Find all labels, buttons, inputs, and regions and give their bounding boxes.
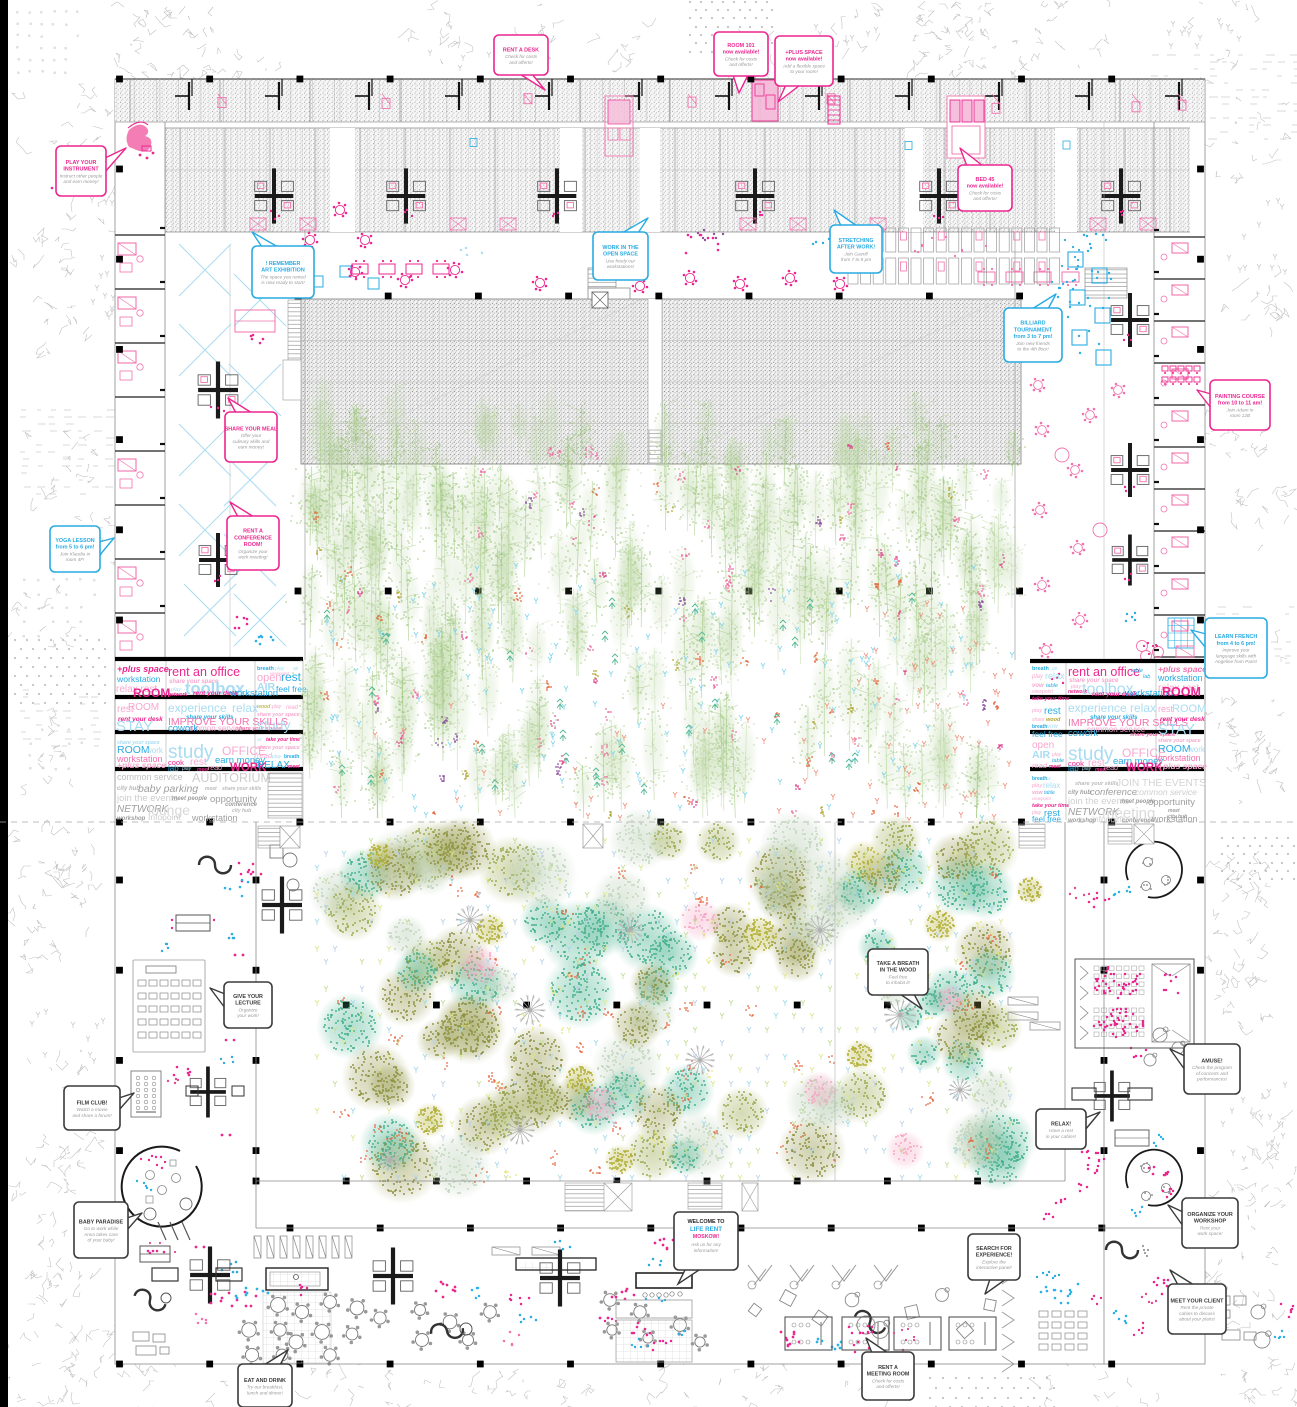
svg-text:meet: meet — [1049, 764, 1061, 770]
svg-text:lab: lab — [1068, 764, 1079, 773]
svg-text:and offerts!: and offerts! — [876, 1384, 900, 1389]
svg-text:Organize: Organize — [238, 1008, 257, 1013]
svg-text:from 3 to 7 pm!: from 3 to 7 pm! — [1014, 334, 1053, 340]
svg-text:lunch and dinner!: lunch and dinner! — [247, 1390, 284, 1395]
svg-text:Angeline from Paris!: Angeline from Paris! — [1214, 659, 1258, 664]
svg-text:Join Gavrill: Join Gavrill — [843, 252, 868, 257]
svg-text:! REMEMBER: ! REMEMBER — [266, 261, 301, 267]
svg-text:Feel free: Feel free — [889, 975, 908, 980]
svg-text:Instruct other people: Instruct other people — [60, 174, 103, 179]
svg-text:your work!: your work! — [236, 1013, 259, 1018]
svg-text:Join Adam in: Join Adam in — [1226, 408, 1254, 413]
svg-text:AUDITORIUM: AUDITORIUM — [192, 771, 271, 785]
svg-text:workstations!: workstations! — [607, 264, 635, 269]
svg-text:experience: experience — [1068, 701, 1127, 715]
svg-text:LEARN FRENCH: LEARN FRENCH — [1215, 634, 1258, 640]
svg-text:Ask us for any: Ask us for any — [690, 1242, 721, 1247]
svg-text:Watch a movie: Watch a movie — [77, 1107, 108, 1112]
svg-text:WORK IN THE: WORK IN THE — [602, 245, 639, 251]
svg-text:Check for costs: Check for costs — [872, 1379, 905, 1384]
svg-text:IN THE WOOD: IN THE WOOD — [880, 968, 917, 974]
svg-text:wood: wood — [257, 704, 271, 710]
svg-text:Join Klaudia in: Join Klaudia in — [59, 552, 91, 557]
svg-text:Add a flexible space: Add a flexible space — [782, 64, 825, 69]
svg-text:STAY: STAY — [116, 718, 153, 735]
svg-text:cabins to discuss: cabins to discuss — [1179, 1311, 1215, 1316]
svg-text:relax: relax — [1130, 701, 1156, 715]
svg-text:meet: meet — [288, 764, 300, 770]
svg-text:cowork: cowork — [168, 723, 198, 734]
svg-text:viewpoint: viewpoint — [1032, 689, 1053, 695]
svg-text:+PLUS SPACE: +PLUS SPACE — [785, 50, 823, 56]
svg-text:play: play — [1031, 674, 1044, 680]
svg-text:now available!: now available! — [723, 50, 760, 56]
svg-text:from 10 to 11 am!: from 10 to 11 am! — [1218, 401, 1263, 407]
svg-text:earn money!: earn money! — [238, 445, 265, 450]
svg-text:ORGANIZE YOUR: ORGANIZE YOUR — [1187, 1212, 1233, 1218]
svg-text:EAT AND DRINK: EAT AND DRINK — [244, 1378, 286, 1384]
svg-text:workstation: workstation — [116, 674, 161, 684]
svg-text:cowork: cowork — [1068, 728, 1098, 739]
svg-text:SEARCH FOR: SEARCH FOR — [976, 1246, 1012, 1252]
svg-text:and offerts!: and offerts! — [729, 62, 753, 67]
svg-text:Anna takes care: Anna takes care — [83, 1232, 118, 1237]
svg-text:+plus space: +plus space — [117, 760, 166, 770]
svg-text:ROOM: ROOM — [1172, 703, 1206, 715]
svg-text:rent an office: rent an office — [1068, 665, 1140, 679]
svg-text:and offerts!: and offerts! — [509, 60, 533, 65]
svg-text:workstation: workstation — [1151, 814, 1198, 824]
svg-text:TAKE A BREATH: TAKE A BREATH — [877, 961, 920, 967]
svg-text:air: air — [257, 737, 263, 742]
svg-text:play: play — [1031, 783, 1043, 789]
svg-text:OPEN SPACE: OPEN SPACE — [603, 252, 638, 258]
svg-text:Offer your: Offer your — [241, 433, 262, 438]
svg-text:of your baby!: of your baby! — [87, 1238, 115, 1243]
svg-text:BED 45: BED 45 — [976, 177, 995, 183]
svg-text:Check for costs: Check for costs — [505, 54, 538, 59]
svg-text:feel free: feel free — [1032, 729, 1063, 739]
svg-text:room 12B: room 12B — [1230, 413, 1250, 418]
svg-text:and share a forum!: and share a forum! — [72, 1113, 112, 1118]
svg-text:in your cabins!: in your cabins! — [1046, 1134, 1077, 1139]
svg-text:workstation: workstation — [1157, 673, 1203, 683]
svg-text:ROOM!: ROOM! — [244, 542, 263, 548]
svg-text:feel free: feel free — [1032, 815, 1061, 824]
svg-text:take your time: take your time — [1032, 696, 1069, 702]
svg-text:MEETING ROOM: MEETING ROOM — [867, 1372, 910, 1378]
svg-text:play: play — [181, 766, 192, 772]
svg-text:Explore the: Explore the — [982, 1260, 1006, 1265]
svg-text:MEET YOUR CLIENT: MEET YOUR CLIENT — [1171, 1299, 1225, 1305]
svg-text:table: table — [1131, 668, 1143, 674]
svg-text:now available!: now available! — [967, 184, 1004, 190]
svg-text:RELAX: RELAX — [257, 760, 290, 771]
svg-text:and earn money!: and earn money! — [63, 179, 99, 184]
svg-text:YOGA LESSON: YOGA LESSON — [55, 538, 94, 544]
svg-text:Organize your: Organize your — [238, 549, 268, 554]
svg-text:SHARE YOUR MEAL: SHARE YOUR MEAL — [225, 426, 278, 432]
svg-text:common service: common service — [117, 772, 183, 782]
svg-text:play: play — [1081, 766, 1092, 772]
svg-text:FILM CLUB!: FILM CLUB! — [77, 1100, 108, 1106]
svg-text:play: play — [271, 704, 282, 710]
svg-text:LIFE RENT: LIFE RENT — [690, 1226, 722, 1233]
svg-text:take your time: take your time — [266, 737, 300, 743]
svg-text:Try our breakfast,: Try our breakfast, — [247, 1385, 283, 1390]
svg-text:ART EXHIBITION: ART EXHIBITION — [261, 268, 305, 274]
svg-text:common service: common service — [1135, 787, 1197, 797]
svg-text:RENT A: RENT A — [878, 1365, 898, 1371]
svg-text:share: share — [1032, 717, 1045, 723]
svg-text:GIVE YOUR: GIVE YOUR — [233, 994, 263, 1000]
svg-text:and offerts!: and offerts! — [973, 196, 997, 201]
svg-text:relax: relax — [1045, 671, 1065, 681]
svg-text:Rent your: Rent your — [1200, 1226, 1221, 1231]
svg-text:ROOM 101: ROOM 101 — [727, 43, 754, 49]
svg-text:workshop: workshop — [117, 816, 146, 822]
svg-text:to your room!: to your room! — [790, 69, 818, 74]
svg-text:AIR: AIR — [257, 681, 276, 693]
svg-text:work meeting!: work meeting! — [238, 555, 268, 560]
svg-text:read: read — [1104, 765, 1119, 772]
svg-text:Use freely our: Use freely our — [606, 259, 636, 264]
svg-text:rent an office: rent an office — [168, 665, 240, 679]
svg-text:TOURNAMENT: TOURNAMENT — [1014, 327, 1053, 333]
svg-text:now available!: now available! — [786, 57, 823, 63]
svg-text:The space you rented: The space you rented — [260, 275, 306, 280]
svg-text:experience: experience — [168, 701, 227, 715]
svg-text:RELAX!: RELAX! — [1051, 1121, 1071, 1127]
svg-text:BILLIARD: BILLIARD — [1020, 321, 1045, 327]
svg-text:RENT A: RENT A — [243, 529, 263, 535]
svg-text:read: read — [286, 705, 299, 711]
svg-text:AMUSE!: AMUSE! — [1201, 1059, 1222, 1065]
svg-text:Have a rest: Have a rest — [1049, 1128, 1074, 1133]
svg-text:workstation: workstation — [191, 813, 238, 823]
svg-text:+plus space: +plus space — [1158, 761, 1207, 771]
svg-text:interactive panel!: interactive panel! — [976, 1265, 1012, 1270]
svg-text:AIR: AIR — [1032, 749, 1051, 761]
svg-text:WELCOME TO: WELCOME TO — [687, 1219, 724, 1225]
svg-text:rest: rest — [1044, 706, 1061, 717]
svg-text:STAY: STAY — [1158, 721, 1195, 738]
svg-text:from 5 to 6 pm!: from 5 to 6 pm! — [56, 545, 95, 551]
svg-text:LECTURE: LECTURE — [235, 1001, 261, 1007]
svg-text:city hub: city hub — [117, 786, 140, 792]
svg-text:performances!: performances! — [1196, 1077, 1228, 1082]
svg-text:infopoint: infopoint — [1092, 814, 1125, 824]
svg-text:Rent the private: Rent the private — [1180, 1305, 1213, 1310]
svg-text:STRETCHING: STRETCHING — [838, 238, 873, 244]
svg-text:information!: information! — [694, 1248, 719, 1253]
svg-text:relax: relax — [1043, 781, 1060, 790]
svg-text:of concerts and: of concerts and — [1196, 1071, 1228, 1076]
svg-text:conference: conference — [1122, 818, 1155, 824]
svg-text:language skills with: language skills with — [1216, 653, 1257, 658]
svg-text:room 4F!: room 4F! — [66, 557, 85, 562]
svg-text:read: read — [1032, 761, 1048, 770]
svg-text:to the 4th floor!: to the 4th floor! — [1017, 347, 1049, 352]
svg-text:Go to work while: Go to work while — [84, 1226, 119, 1231]
svg-text:Improve your: Improve your — [1222, 648, 1250, 653]
svg-text:MOSKOW!: MOSKOW! — [693, 1234, 719, 1240]
svg-text:relax: relax — [232, 701, 258, 715]
svg-text:lab: lab — [1143, 674, 1150, 680]
svg-text:RENT A DESK: RENT A DESK — [503, 47, 539, 53]
svg-text:ROOM: ROOM — [1162, 685, 1201, 699]
svg-text:WORKSHOP: WORKSHOP — [1194, 1219, 1227, 1225]
svg-text:to inhabit it!: to inhabit it! — [886, 980, 911, 985]
svg-text:BABY PARADISE: BABY PARADISE — [79, 1220, 124, 1226]
svg-text:meet: meet — [205, 786, 217, 792]
svg-text:ROOM: ROOM — [133, 686, 170, 700]
svg-text:PLAY YOUR: PLAY YOUR — [66, 160, 97, 166]
svg-text:wood: wood — [1046, 717, 1061, 723]
svg-text:Check the program: Check the program — [1192, 1065, 1232, 1070]
svg-text:about your plans!: about your plans! — [1179, 1317, 1216, 1322]
svg-text:play: play — [1031, 708, 1043, 714]
svg-text:viewpoint: viewpoint — [270, 671, 290, 676]
svg-text:culinary skills and: culinary skills and — [233, 439, 270, 444]
svg-text:share your skills: share your skills — [222, 786, 262, 792]
svg-text:INSTRUMENT: INSTRUMENT — [63, 167, 99, 173]
svg-text:study: study — [257, 717, 290, 733]
svg-text:AFTER WORK!: AFTER WORK! — [837, 245, 876, 251]
svg-text:PAINTING COURSE: PAINTING COURSE — [1215, 394, 1265, 400]
svg-text:Infopoint: Infopoint — [148, 812, 181, 822]
svg-text:CONFERENCE: CONFERENCE — [234, 535, 272, 541]
svg-text:from 4 to 6 pm!: from 4 to 6 pm! — [1217, 641, 1256, 647]
svg-text:from 7 to 8 pm: from 7 to 8 pm — [841, 257, 871, 262]
svg-text:work space!: work space! — [1197, 1231, 1223, 1236]
svg-text:ROOM: ROOM — [128, 702, 159, 713]
svg-text:is now ready to start!: is now ready to start! — [261, 280, 305, 285]
svg-text:EXPERIENCE!: EXPERIENCE! — [976, 1253, 1013, 1259]
svg-text:Check for costs: Check for costs — [725, 57, 758, 62]
svg-text:Check for costs: Check for costs — [969, 191, 1002, 196]
svg-text:Join new friends: Join new friends — [1015, 341, 1051, 346]
svg-text:read: read — [257, 751, 273, 760]
svg-text:viewpoint: viewpoint — [1032, 796, 1052, 801]
svg-text:+plus space: +plus space — [117, 664, 169, 674]
